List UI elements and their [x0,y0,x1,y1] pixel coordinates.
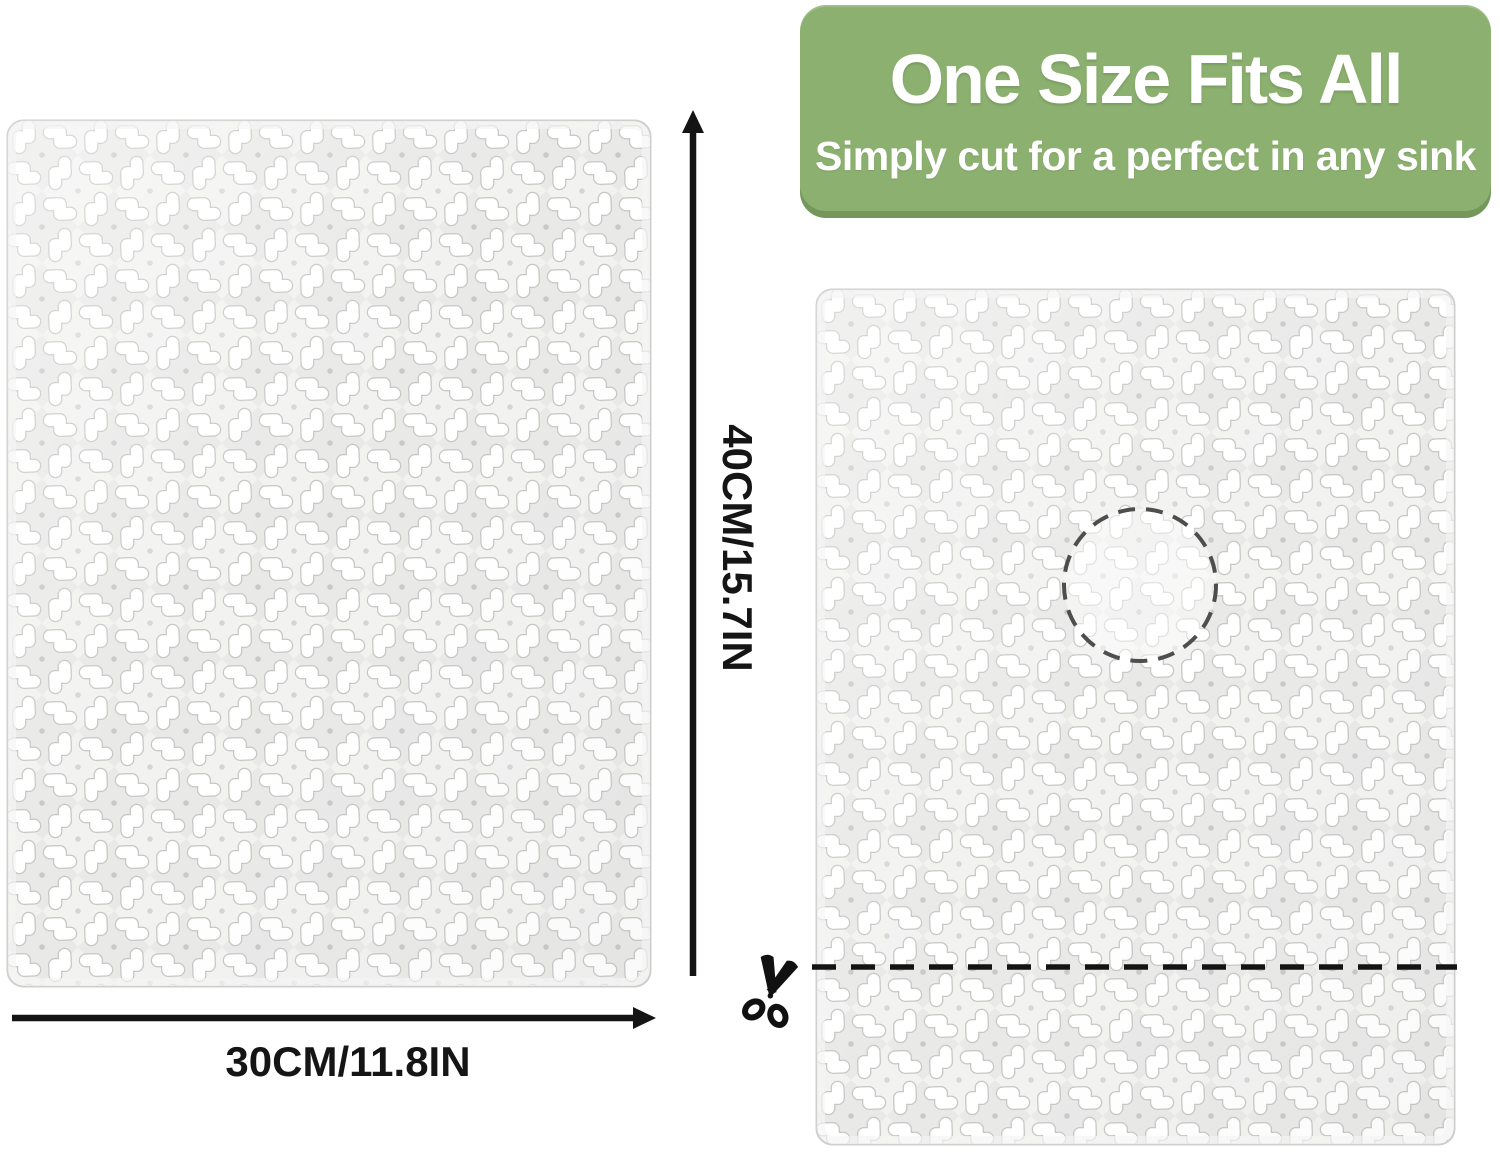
sink-mat-full [6,119,652,988]
product-infographic-canvas: One Size Fits All Simply cut for a perfe… [0,0,1500,1154]
sink-mat-with-cut-guides [815,288,1456,1146]
info-banner: One Size Fits All Simply cut for a perfe… [800,5,1491,218]
drain-cutout-dashed-circle [1064,509,1216,661]
width-arrow [12,1007,656,1029]
banner-title: One Size Fits All [890,43,1402,117]
height-dimension-label: 40CM/15.7IN [713,424,761,671]
mat-lighting [8,121,651,987]
mat-lighting [817,290,1455,1145]
scissors-icon [740,952,804,1031]
right-arrow-icon [633,1007,656,1029]
height-arrow [682,110,704,976]
banner-subtitle: Simply cut for a perfect in any sink [815,133,1476,180]
width-dimension-label: 30CM/11.8IN [225,1038,470,1086]
up-arrow-icon [682,110,704,133]
